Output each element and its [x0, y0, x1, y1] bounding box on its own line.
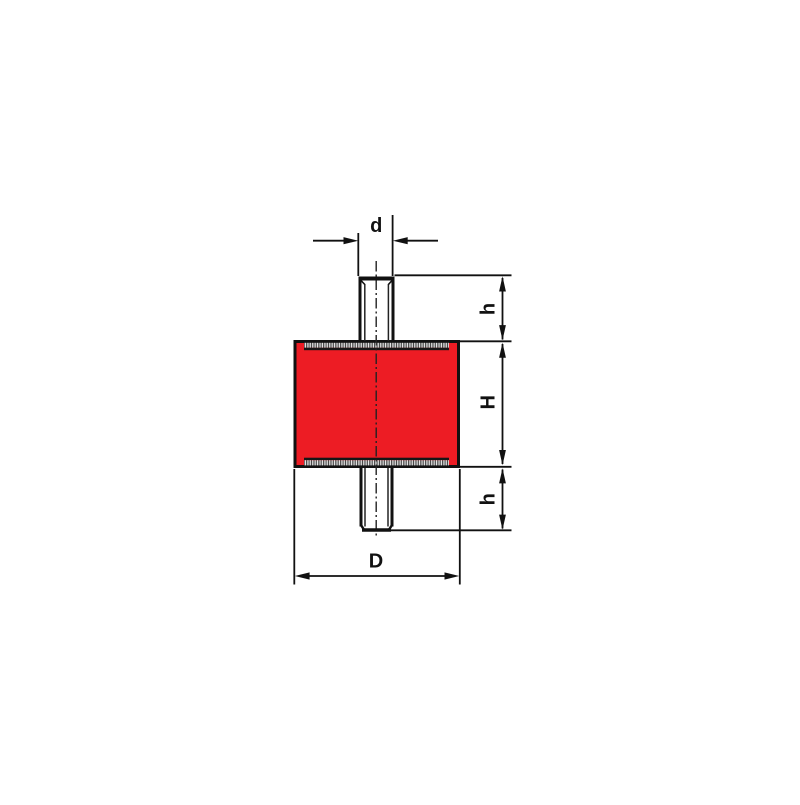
- svg-text:H: H: [478, 395, 500, 409]
- svg-text:h: h: [478, 303, 500, 315]
- svg-text:D: D: [369, 551, 383, 573]
- svg-text:d: d: [370, 215, 382, 237]
- svg-text:h: h: [478, 493, 500, 505]
